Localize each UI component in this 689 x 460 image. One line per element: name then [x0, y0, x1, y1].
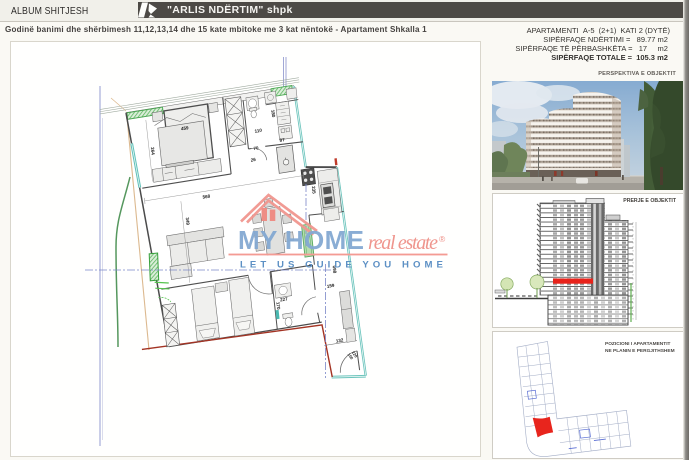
- svg-text:87: 87: [279, 137, 285, 143]
- svg-text:real estate: real estate: [368, 232, 438, 254]
- svg-text:70: 70: [253, 145, 259, 151]
- svg-text:264: 264: [150, 147, 156, 156]
- svg-text:MY HOME: MY HOME: [238, 225, 364, 255]
- svg-text:170: 170: [275, 302, 281, 311]
- svg-text:26: 26: [250, 157, 256, 163]
- svg-text:POZICIONI I APARTAMENTIT: POZICIONI I APARTAMENTIT: [605, 341, 671, 347]
- svg-text:NE PLANIN E PERGJITHSHEM: NE PLANIN E PERGJITHSHEM: [605, 348, 675, 354]
- svg-text:®: ®: [439, 234, 446, 244]
- svg-text:349: 349: [185, 217, 191, 226]
- svg-text:235: 235: [311, 186, 317, 195]
- svg-text:LET US GUIDE YOU HOME: LET US GUIDE YOU HOME: [240, 260, 447, 271]
- svg-text:PRERJE E OBJEKTIT: PRERJE E OBJEKTIT: [623, 198, 677, 204]
- svg-text:180: 180: [270, 109, 276, 118]
